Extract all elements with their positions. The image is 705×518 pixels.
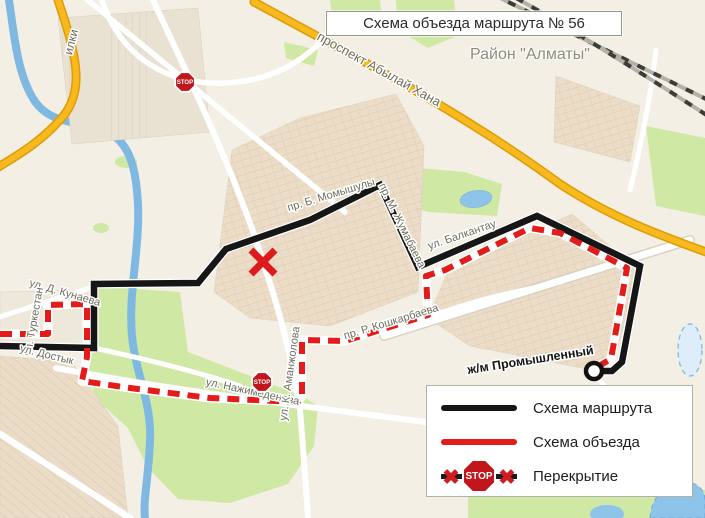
route-end-marker: [586, 363, 602, 379]
stop-sign-icon: STOP: [174, 71, 195, 92]
legend-closure-label: Перекрытие: [533, 468, 618, 485]
legend-row-closure: STOP Перекрытие: [435, 459, 692, 493]
park-area: [93, 223, 109, 233]
stop-sign-text: STOP: [254, 380, 270, 386]
closure-x-icon: [443, 468, 459, 484]
closure-legend-icon: STOP: [441, 459, 517, 493]
map-title: Схема объезда маршрута № 56: [326, 11, 622, 36]
stop-sign-border: STOP: [462, 459, 496, 493]
legend-route-label: Схема маршрута: [533, 400, 652, 417]
legend-detour-swatch: [441, 439, 517, 445]
seasonal-pond: [678, 324, 702, 376]
map-stage: проспект Абылай Ханапр. Б. Момышулыпр. М…: [0, 0, 705, 518]
legend-row-detour: Схема объезда: [435, 425, 692, 459]
stop-sign-icon: STOP: [251, 371, 272, 392]
legend-route-swatch: [441, 405, 517, 411]
legend-row-route: Схема маршрута: [435, 391, 692, 425]
legend-box: Схема маршрута Схема объезда STOP Перекр…: [426, 385, 693, 497]
stop-sign-text: STOP: [177, 80, 193, 86]
region-label: Район "Алматы": [470, 46, 590, 64]
closure-x-icon: [499, 468, 515, 484]
legend-detour-label: Схема объезда: [533, 434, 640, 451]
stop-sign-icon: STOP: [464, 461, 494, 491]
